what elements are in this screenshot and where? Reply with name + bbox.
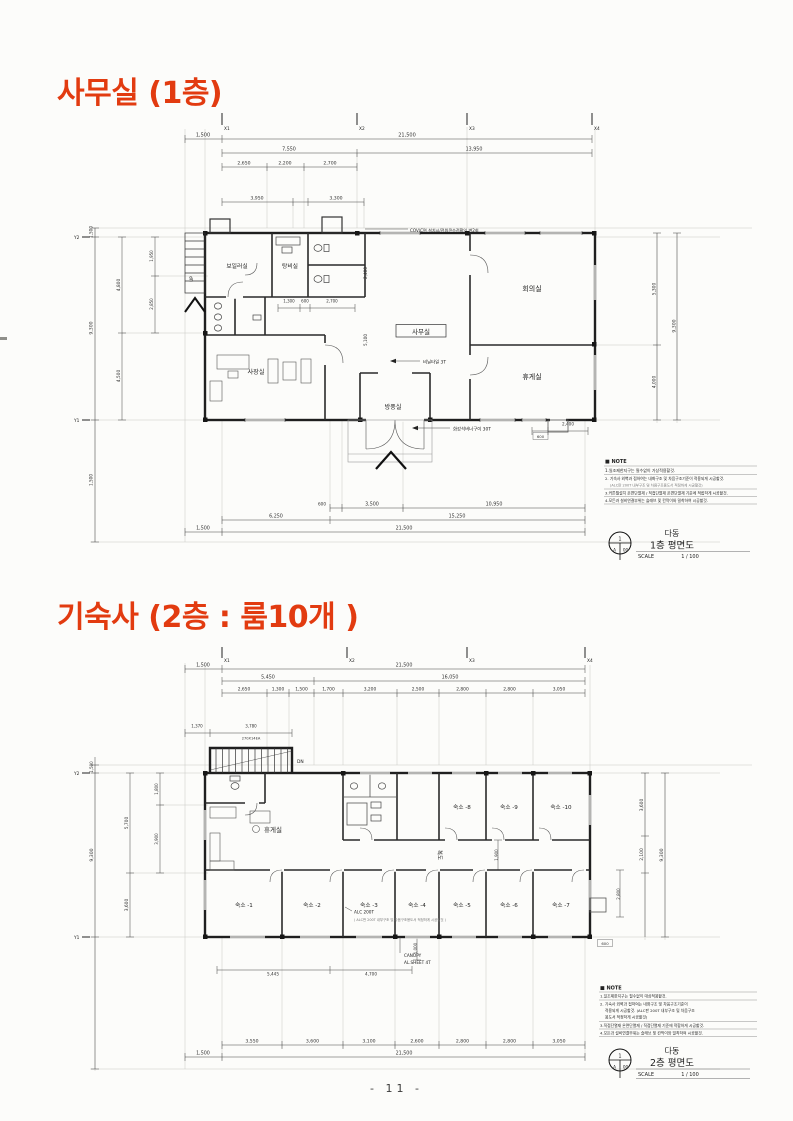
- dim-label: 21,500: [398, 133, 416, 139]
- dim-label: 3,780: [245, 724, 257, 729]
- symbol-number: 1: [618, 1054, 621, 1060]
- dim-label: 1,300: [272, 687, 285, 693]
- grid-ticks: [82, 113, 592, 420]
- building-name: 다동: [665, 1047, 680, 1056]
- room-label-unit9: 숙소 -9: [500, 803, 518, 811]
- stairs-up-label: UP: [189, 276, 194, 282]
- toilet-fixtures: [230, 776, 386, 821]
- annotation-vinyl-tile: 비닐타일 3T: [423, 358, 446, 365]
- dim-label: 270X14EA: [242, 737, 261, 741]
- grid-label-x1: X1: [224, 658, 230, 664]
- dimension-lines: [91, 665, 669, 1069]
- room-label-unit5: 숙소 -5: [453, 901, 471, 909]
- drawing-name: 1층 평면도: [650, 541, 694, 552]
- dim-label: 2,200: [278, 161, 291, 167]
- dim-label: 1,500: [295, 687, 308, 693]
- arrowhead-icon: [390, 359, 396, 363]
- dim-label: 1,500: [196, 1051, 210, 1057]
- grid-label-x4: X4: [587, 658, 593, 664]
- dim-label: 2,600: [410, 1039, 423, 1045]
- room-label-unit1: 숙소 -1: [235, 901, 253, 909]
- annotation-canopy-material: AL.SHEET 4T: [404, 960, 431, 965]
- dim-label: 1,300: [283, 299, 295, 304]
- title-block: 1 A 00 다동 2층 평면도 SCALE 1 / 100: [609, 1047, 750, 1079]
- grid-label-x2: X2: [359, 126, 365, 132]
- dim-label: 600: [318, 502, 326, 507]
- dim-label: 2,100: [639, 848, 645, 861]
- annotation-alc: ALC 200T: [354, 910, 374, 915]
- dim-label: 1,700: [322, 687, 335, 693]
- dim-label: 1,500: [89, 761, 94, 773]
- dim-label: 16,050: [442, 675, 459, 681]
- dim-label: 5,100: [363, 334, 368, 346]
- dim-label: 9,300: [89, 848, 95, 861]
- note-block: ■ NOTE 1.일조제한지구는 필수없이 대상적용할것. 2. 기숙사 외벽과…: [599, 986, 757, 1037]
- dim-label: 600: [537, 434, 545, 439]
- dim-label: 2,800: [503, 687, 516, 693]
- note-line: 4.모든과 설비연결부위는 슬래브 및 칸막이와 밀착하여 시공할것.: [605, 498, 708, 503]
- note-line: 4.모든과 설비연결부위는 슬래브 및 칸막이와 밀착하여 시공할것.: [600, 1031, 703, 1036]
- room-label-rest: 휴게실: [264, 825, 282, 834]
- grid-label-y1: Y1: [73, 418, 80, 424]
- grid-label-y1: Y1: [73, 935, 80, 941]
- building-name: 다동: [665, 529, 680, 538]
- dim-label: 5,700: [124, 817, 130, 830]
- dim-label: 3,050: [552, 1039, 565, 1045]
- room-label-corridor: 복도: [436, 850, 443, 860]
- dim-label: 4,700: [365, 972, 377, 977]
- dim-label: 2,700: [323, 161, 336, 167]
- stairs: [210, 748, 292, 773]
- dim-label: 9,300: [659, 848, 665, 861]
- note-line: 3.커튼월설치 온면단열재 / 직접단열재 온면단열재 기준에 적합하게 시공할…: [605, 491, 728, 496]
- note-line: 2. 기숙사 외벽과 접하여는 내화구조 및 차음구조기준이: [600, 1002, 688, 1007]
- scale-label: SCALE: [638, 554, 654, 560]
- grid-label-x4: X4: [594, 126, 600, 132]
- dim-label: 21,500: [396, 1051, 413, 1057]
- dim-label: 2,650: [238, 687, 251, 693]
- scan-artifact: [0, 337, 7, 340]
- dim-label: 4,500: [116, 370, 122, 383]
- up-arrow-icon: [185, 298, 205, 312]
- note-line: 3.직접단열재 온면단열재 / 직접단열재 기준에 적합하게 시공할것.: [600, 1023, 704, 1028]
- note-title: ■ NOTE: [600, 986, 622, 992]
- dim-label: 1,800: [154, 783, 159, 795]
- symbol-number: 1: [618, 537, 621, 543]
- room-label-rest: 휴게실: [522, 372, 541, 381]
- annotation-alc-note: ( ALC판 200T 내부구조 및 차음구조용도서 적정하게 시공할것 ): [354, 917, 447, 922]
- dim-label: 10,950: [486, 502, 503, 508]
- dim-label: 6,250: [269, 514, 283, 520]
- dim-label: 2,800: [456, 687, 469, 693]
- annotation-power: COV/C면 설치시/전원콘수전확인 변2회: [410, 227, 479, 233]
- note-line: 적용되게 시공할것. (ALC판 200T 내부구조 및 차음구조: [605, 1008, 695, 1013]
- dim-label: 3,500: [365, 502, 379, 508]
- leader-line: [345, 907, 352, 911]
- page-number: - 11 -: [0, 1082, 793, 1095]
- floor-plan-1-drawing: X1 X2 X3 X4 Y2 Y1 1,500 21,500 7,550 13,…: [60, 105, 760, 560]
- grid-label-x2: X2: [349, 658, 355, 664]
- dim-label: 9,300: [89, 321, 95, 334]
- room-label-boiler: 보일러실: [226, 262, 247, 270]
- room-label-unit10: 숙소 -10: [550, 803, 572, 811]
- dim-label: 1,500: [196, 526, 210, 532]
- dim-label: 3,550: [245, 1039, 258, 1045]
- dim-label: 1,950: [149, 250, 154, 262]
- room-label-meeting: 회의실: [522, 284, 541, 293]
- dim-label: 1,500: [196, 663, 210, 669]
- dim-label: 600: [301, 299, 309, 304]
- dim-label: 2,700: [326, 299, 338, 304]
- entrance-porch: [348, 420, 432, 462]
- dim-label: 9,300: [672, 319, 678, 332]
- note-block: ■ NOTE 1.일조제한지구는 필수없이 가상적용할것. 2. 기숙사 외벽과…: [604, 459, 757, 504]
- dim-label: 4,800: [116, 279, 122, 292]
- note-line: 2. 기숙사 외벽과 접하여는 내화구조 및 차음구조기준이 적용되게 시공할것…: [605, 476, 724, 481]
- room-label-pantry: 탕비실: [282, 262, 298, 270]
- dim-label: 3,600: [124, 899, 130, 912]
- scale-value: 1 / 100: [681, 554, 699, 560]
- room-label-vestibule: 방풍실: [384, 403, 401, 411]
- room-label-unit4: 숙소 -4: [408, 901, 426, 909]
- dim-label: 5,450: [261, 675, 275, 681]
- dim-label: 21,500: [396, 526, 413, 532]
- interior-walls: [205, 773, 590, 937]
- dim-label: 2,500: [412, 687, 425, 693]
- scale-value: 1 / 100: [681, 1072, 699, 1078]
- room-label-office: 사무실: [412, 327, 430, 336]
- symbol-sheet: A: [613, 1065, 616, 1070]
- note-line: 1.일조제한지구는 필수없이 가상적용할것.: [605, 467, 675, 473]
- furniture: [210, 355, 311, 401]
- grid-label-x3: X3: [469, 658, 475, 664]
- note-line: 1.일조제한지구는 필수없이 대상적용할것.: [600, 994, 667, 999]
- grid-label-y2: Y2: [73, 771, 80, 777]
- room-label-unit6: 숙소 -6: [500, 901, 518, 909]
- drawing-name: 2층 평면도: [650, 1058, 694, 1069]
- annotation-canopy: CANOPY: [404, 953, 422, 958]
- roof-protrusions: [210, 217, 342, 233]
- symbol-sheet: A: [613, 548, 616, 553]
- note-line: (ALC판 200T 내부구조 및 차음구조용도서 적정하게 시공할것): [610, 483, 703, 488]
- dim-label: 21,500: [396, 663, 413, 669]
- entrance-arrow-icon: [376, 452, 406, 469]
- annotation-granite: 화강석버너구이 30T: [453, 425, 491, 432]
- scale-label: SCALE: [638, 1072, 654, 1078]
- dim-label: 2,800: [456, 1039, 469, 1045]
- arrowhead-icon: [412, 426, 418, 430]
- dim-label: 3,950: [250, 196, 263, 202]
- dim-label: 600: [601, 941, 609, 946]
- grid-label-x1: X1: [224, 126, 230, 132]
- dim-label: 3,600: [306, 1039, 319, 1045]
- dim-label: 2,650: [237, 161, 250, 167]
- dim-label: 3,300: [329, 196, 342, 202]
- dim-label: 5,300: [652, 283, 658, 296]
- room-label-unit3: 숙소 -3: [360, 901, 378, 909]
- furniture: [210, 807, 270, 870]
- dim-label: 3,050: [553, 687, 566, 693]
- dim-label: 1,500: [89, 226, 94, 238]
- floor-plan-2-drawing: X1 X2 X3 X4 Y2 Y1 1,500 21,500 5,450 16,…: [60, 645, 760, 1090]
- note-line: 용도서 적정하게 시공할것): [605, 1015, 648, 1020]
- dim-label: 3,200: [364, 687, 377, 693]
- document-page: 사무실 (1층) 기숙사 (2층 : 룸10개 ) X1 X2 X3 X4 Y2…: [0, 0, 793, 1121]
- dimension-lines: [91, 135, 681, 542]
- dim-label: 4,000: [652, 376, 658, 389]
- dim-label: 3,100: [362, 1039, 375, 1045]
- room-label-ceo: 사장실: [247, 368, 264, 376]
- dim-label: 15,250: [449, 514, 466, 520]
- dim-label: 2,850: [149, 298, 154, 310]
- symbol-code: 00: [623, 1065, 629, 1070]
- note-title: ■ NOTE: [605, 459, 627, 465]
- grid-label-x3: X3: [469, 126, 475, 132]
- grid-label-y2: Y2: [73, 235, 80, 241]
- dim-label: 2,800: [616, 888, 621, 900]
- dim-label: 1,900: [494, 849, 499, 861]
- title-block: 1 A 00 다동 1층 평면도 SCALE 1 / 100: [609, 529, 750, 560]
- dim-label: 7,550: [282, 147, 296, 153]
- stairs: [185, 233, 205, 293]
- dim-label: 13,950: [466, 147, 483, 153]
- room-label-unit7: 숙소 -7: [552, 901, 570, 909]
- dim-label: 3,600: [639, 799, 645, 812]
- room-label-unit8: 숙소 -8: [453, 803, 471, 811]
- section-title-dorm-2f: 기숙사 (2층 : 룸10개 ): [57, 592, 358, 636]
- bath-partitions: [343, 773, 397, 825]
- symbol-code: 00: [623, 548, 629, 553]
- room-label-unit2: 숙소 -2: [303, 901, 321, 909]
- dim-label: 1,500: [89, 474, 94, 486]
- stairs-down-label: DN: [297, 759, 304, 765]
- dim-label: 1,500: [196, 133, 210, 139]
- dim-label: 2,800: [503, 1039, 516, 1045]
- rear-step: [590, 898, 606, 912]
- dim-label: 3,900: [154, 833, 159, 845]
- dim-label: 5,445: [267, 972, 279, 977]
- dim-label: 1,370: [191, 724, 203, 729]
